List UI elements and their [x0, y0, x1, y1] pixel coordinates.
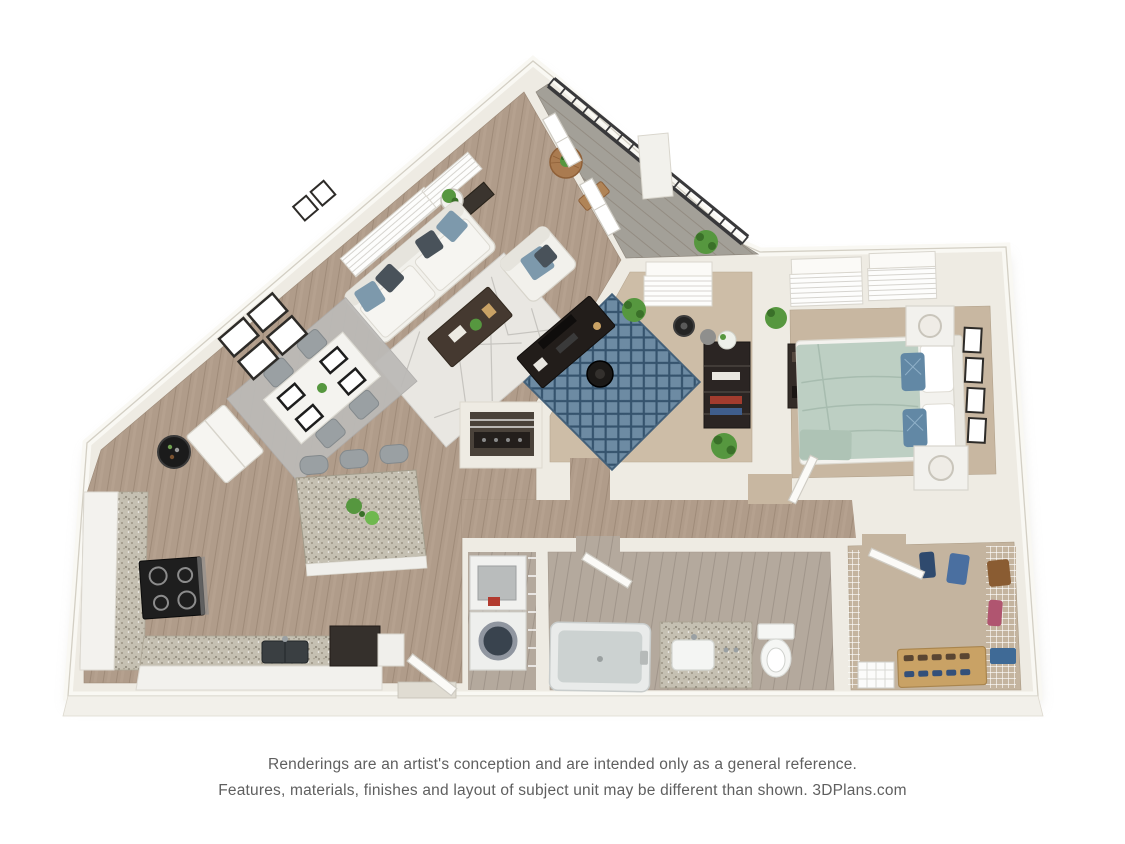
wire-basket: [858, 662, 894, 688]
vanity: [660, 622, 752, 688]
office-doorway: [570, 458, 610, 504]
detergent: [488, 597, 500, 606]
bar-barrel-table: [158, 436, 190, 468]
bedroom-doorway: [748, 474, 792, 504]
closet-doorway: [862, 534, 906, 550]
laundry-closet: [470, 556, 536, 670]
island-plant: [346, 498, 362, 514]
coat-closet: [460, 402, 542, 468]
disclaimer: Renderings are an artist's conception an…: [0, 752, 1125, 804]
floor-plan-svg: [0, 0, 1125, 844]
floor-plan-rendering: [0, 0, 1125, 844]
sphere-lamp: [700, 329, 716, 345]
disclaimer-line-2: Features, materials, finishes and layout…: [0, 778, 1125, 804]
nightstand-bottom: [914, 446, 968, 490]
nightstand-top: [906, 306, 954, 346]
bed-throw: [799, 429, 852, 460]
bookshelf: [704, 331, 750, 428]
office-plant-bottom: [711, 433, 737, 459]
office-plant-top: [622, 298, 646, 322]
kitchen-cabinets-left: [80, 492, 118, 670]
bathtub: [549, 622, 650, 692]
disclaimer-line-1: Renderings are an artist's conception an…: [0, 752, 1125, 778]
bed: [795, 335, 966, 465]
bottom-wall-face: [63, 696, 1043, 716]
living-wall-frames: [293, 181, 335, 221]
stove: [139, 557, 209, 619]
bookshelf-flowers: [718, 331, 736, 349]
vanity-sink: [672, 640, 714, 670]
shoe-rack: [897, 646, 986, 687]
kitchen-cabinets-bottom: [136, 666, 382, 690]
balcony-pillar: [638, 133, 673, 199]
balcony-plant: [694, 230, 718, 254]
hallway-floor: [462, 500, 856, 538]
floor-fan-hub: [681, 323, 688, 330]
toilet: [758, 624, 794, 677]
bathroom-doorway: [576, 536, 620, 556]
office-chair: [587, 361, 613, 387]
bedroom-plant: [765, 307, 787, 329]
office-window: [644, 262, 712, 306]
